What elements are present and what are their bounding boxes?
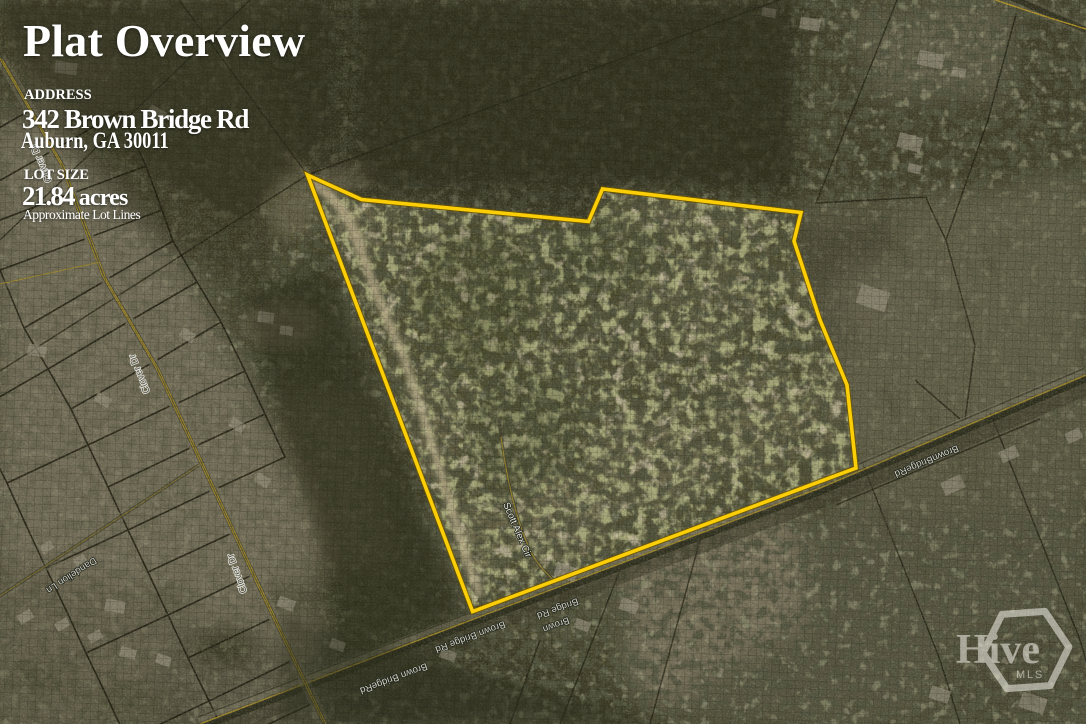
svg-text:Hive: Hive xyxy=(956,627,1040,673)
svg-text:MLS: MLS xyxy=(1016,669,1044,681)
